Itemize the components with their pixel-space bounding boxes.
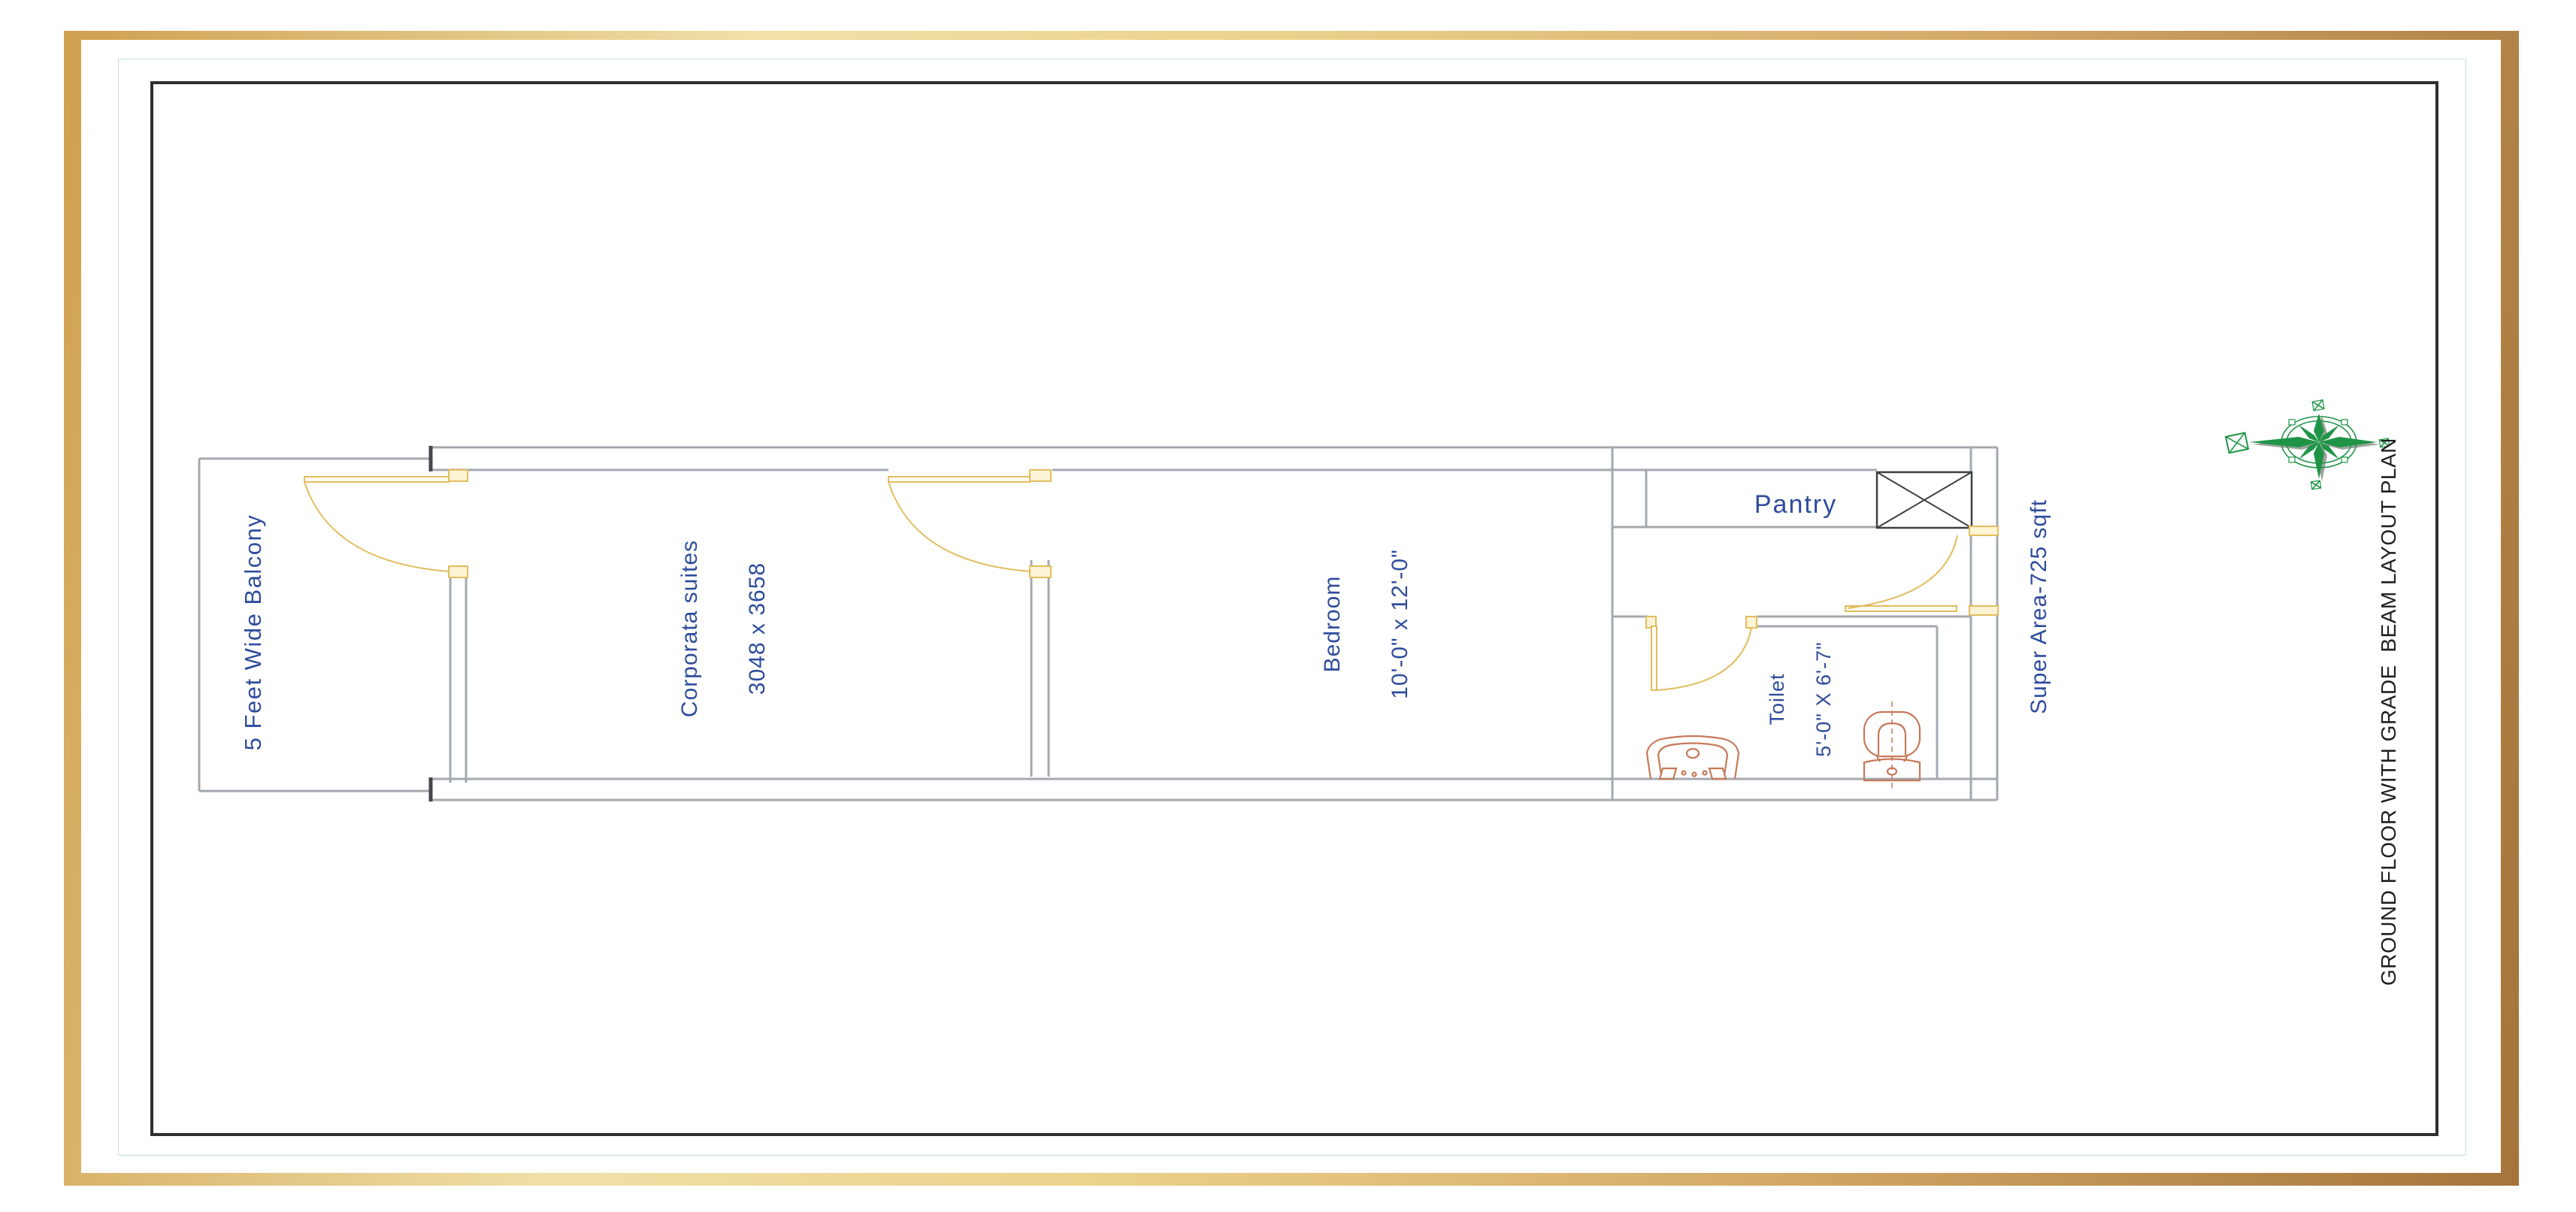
compass-north-marker <box>2312 400 2324 411</box>
right-wall <box>1971 447 1997 800</box>
label-suite: Corporata suites 3048 x 3658 <box>656 516 792 741</box>
label-pantry: Pantry <box>1721 489 1871 520</box>
compass-south-marker <box>2311 480 2320 489</box>
compass-west-marker <box>2226 433 2248 453</box>
label-suite-name: Corporata suites <box>656 516 724 741</box>
balcony-door <box>304 470 468 577</box>
label-toilet-dimensions: 5'-0" X 6'-7" <box>1800 620 1847 778</box>
water-closet <box>1864 701 1920 788</box>
bottom-wall <box>431 779 1997 800</box>
wall-bedroom-pantry <box>1612 447 1646 800</box>
vanity-sink <box>1647 736 1739 779</box>
corridor-door <box>1845 526 1998 615</box>
balcony-walls <box>199 459 429 791</box>
compass-rose <box>2226 400 2390 489</box>
label-bedroom-name: Bedroom <box>1299 526 1367 722</box>
label-balcony: 5 Feet Wide Balcony <box>237 489 270 775</box>
suite-door <box>888 470 1051 577</box>
label-bedroom-dimensions: 10'-0" x 12'-0" <box>1367 526 1434 722</box>
label-toilet: Toilet 5'-0" X 6'-7" <box>1754 620 1847 778</box>
shaft-hatch <box>1877 472 1972 528</box>
label-toilet-name: Toilet <box>1754 620 1800 778</box>
toilet-door <box>1646 617 1757 690</box>
floor-plan-drawing <box>0 0 2576 1212</box>
wall-suite-bedroom <box>1031 560 1049 777</box>
label-suite-dimensions: 3048 x 3658 <box>724 516 792 741</box>
label-super-area: Super Area-725 sqft <box>2024 464 2054 750</box>
wall-balcony-suite <box>450 575 466 783</box>
drawing-title: GROUND FLOOR WITH GRADE BEAM LAYOUT PLAN <box>2374 444 2404 986</box>
label-bedroom: Bedroom 10'-0" x 12'-0" <box>1299 526 1434 722</box>
floor-plan-page: { "title": { "text": "GROUND FLOOR WITH … <box>0 0 2576 1212</box>
